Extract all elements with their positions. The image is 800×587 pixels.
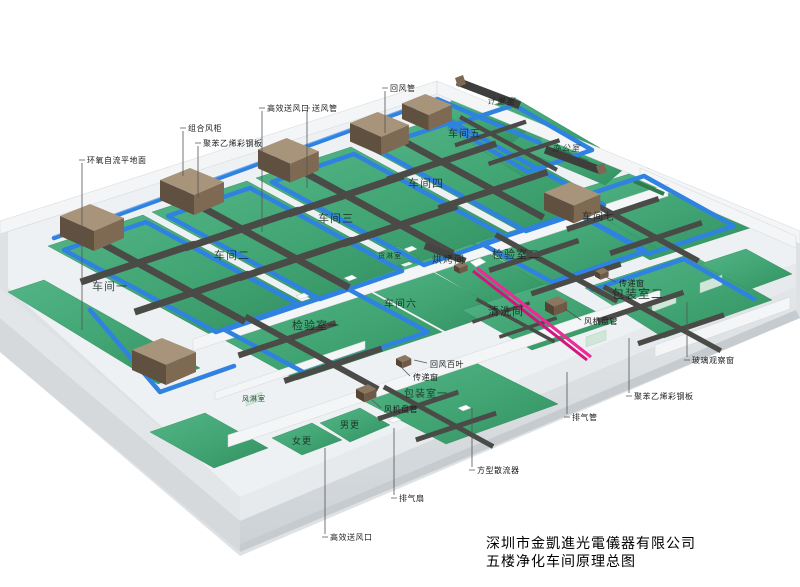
room-label-packing-1: 包装室一 — [404, 387, 448, 400]
annotation-fan-coil-left: 风机盘管 — [384, 404, 418, 414]
isometric-cleanroom-diagram: 环氧自流平地面 组合风柜 聚苯乙烯彩钢板 高效送风口 送风管 回风管 风机盘管 … — [0, 0, 800, 587]
annotation-pass-box-left: 传递窗 — [413, 372, 439, 382]
annotation-steel-panel-right: 聚苯乙烯彩钢板 — [634, 391, 694, 401]
room-label-cleaning: 清洗间 — [488, 305, 524, 318]
title-block: 深圳市金凱進光電儀器有限公司 五楼净化车间原理总图 — [486, 535, 696, 570]
room-label-office: 办公室 — [552, 143, 581, 154]
annotation-exhaust-duct: 排气管 — [572, 412, 598, 422]
company-name: 深圳市金凱進光電儀器有限公司 — [486, 535, 696, 552]
annotation-epoxy-floor: 环氧自流平地面 — [87, 155, 147, 165]
annotation-glass-window: 玻璃观察窗 — [692, 355, 735, 365]
room-label-cargo-shower: 货淋室 — [378, 251, 402, 260]
room-label-mens-changing: 男更 — [340, 420, 360, 431]
room-label-baking: 烘烤间 — [432, 253, 465, 266]
room-label-packing-2: 包装室二 — [612, 286, 664, 301]
room-label-metering: 计量室 — [487, 96, 516, 107]
room-label-inspection-2: 检验室二 — [492, 247, 540, 261]
room-label-workshop-7: 车间七 — [582, 210, 615, 223]
annotation-exhaust-fan: 排气扇 — [399, 493, 425, 503]
annotation-steel-panel-left: 聚苯乙烯彩钢板 — [203, 138, 263, 148]
annotation-fan-coil-right: 风机盘管 — [584, 316, 618, 326]
annotation-return-louver: 回风百叶 — [430, 360, 464, 369]
room-label-workshop-4: 车间四 — [408, 176, 444, 190]
drawing-title: 五楼净化车间原理总图 — [486, 553, 636, 570]
room-label-workshop-1: 车间一 — [92, 279, 128, 293]
annotation-hepa-outlet-bottom: 高效送风口 — [330, 532, 373, 542]
room-label-workshop-6: 车间六 — [384, 297, 417, 310]
annotation-combined-ahu: 组合风柜 — [188, 123, 222, 133]
annotation-square-diffuser: 方型散流器 — [477, 465, 520, 475]
room-label-air-shower: 风淋室 — [242, 394, 266, 403]
room-label-workshop-2: 车间二 — [214, 248, 250, 262]
room-label-inspection-1: 检验室一 — [292, 318, 340, 332]
annotation-supply-duct: 送风管 — [312, 103, 338, 113]
annotation-return-duct: 回风管 — [390, 83, 416, 93]
room-label-workshop-3: 车间三 — [318, 211, 354, 225]
room-label-workshop-5: 车间五 — [448, 127, 481, 140]
room-label-womens-changing: 女更 — [292, 435, 312, 447]
diagram-canvas: 环氧自流平地面 组合风柜 聚苯乙烯彩钢板 高效送风口 送风管 回风管 风机盘管 … — [0, 0, 800, 587]
annotation-hepa-outlet-top: 高效送风口 — [267, 103, 310, 113]
